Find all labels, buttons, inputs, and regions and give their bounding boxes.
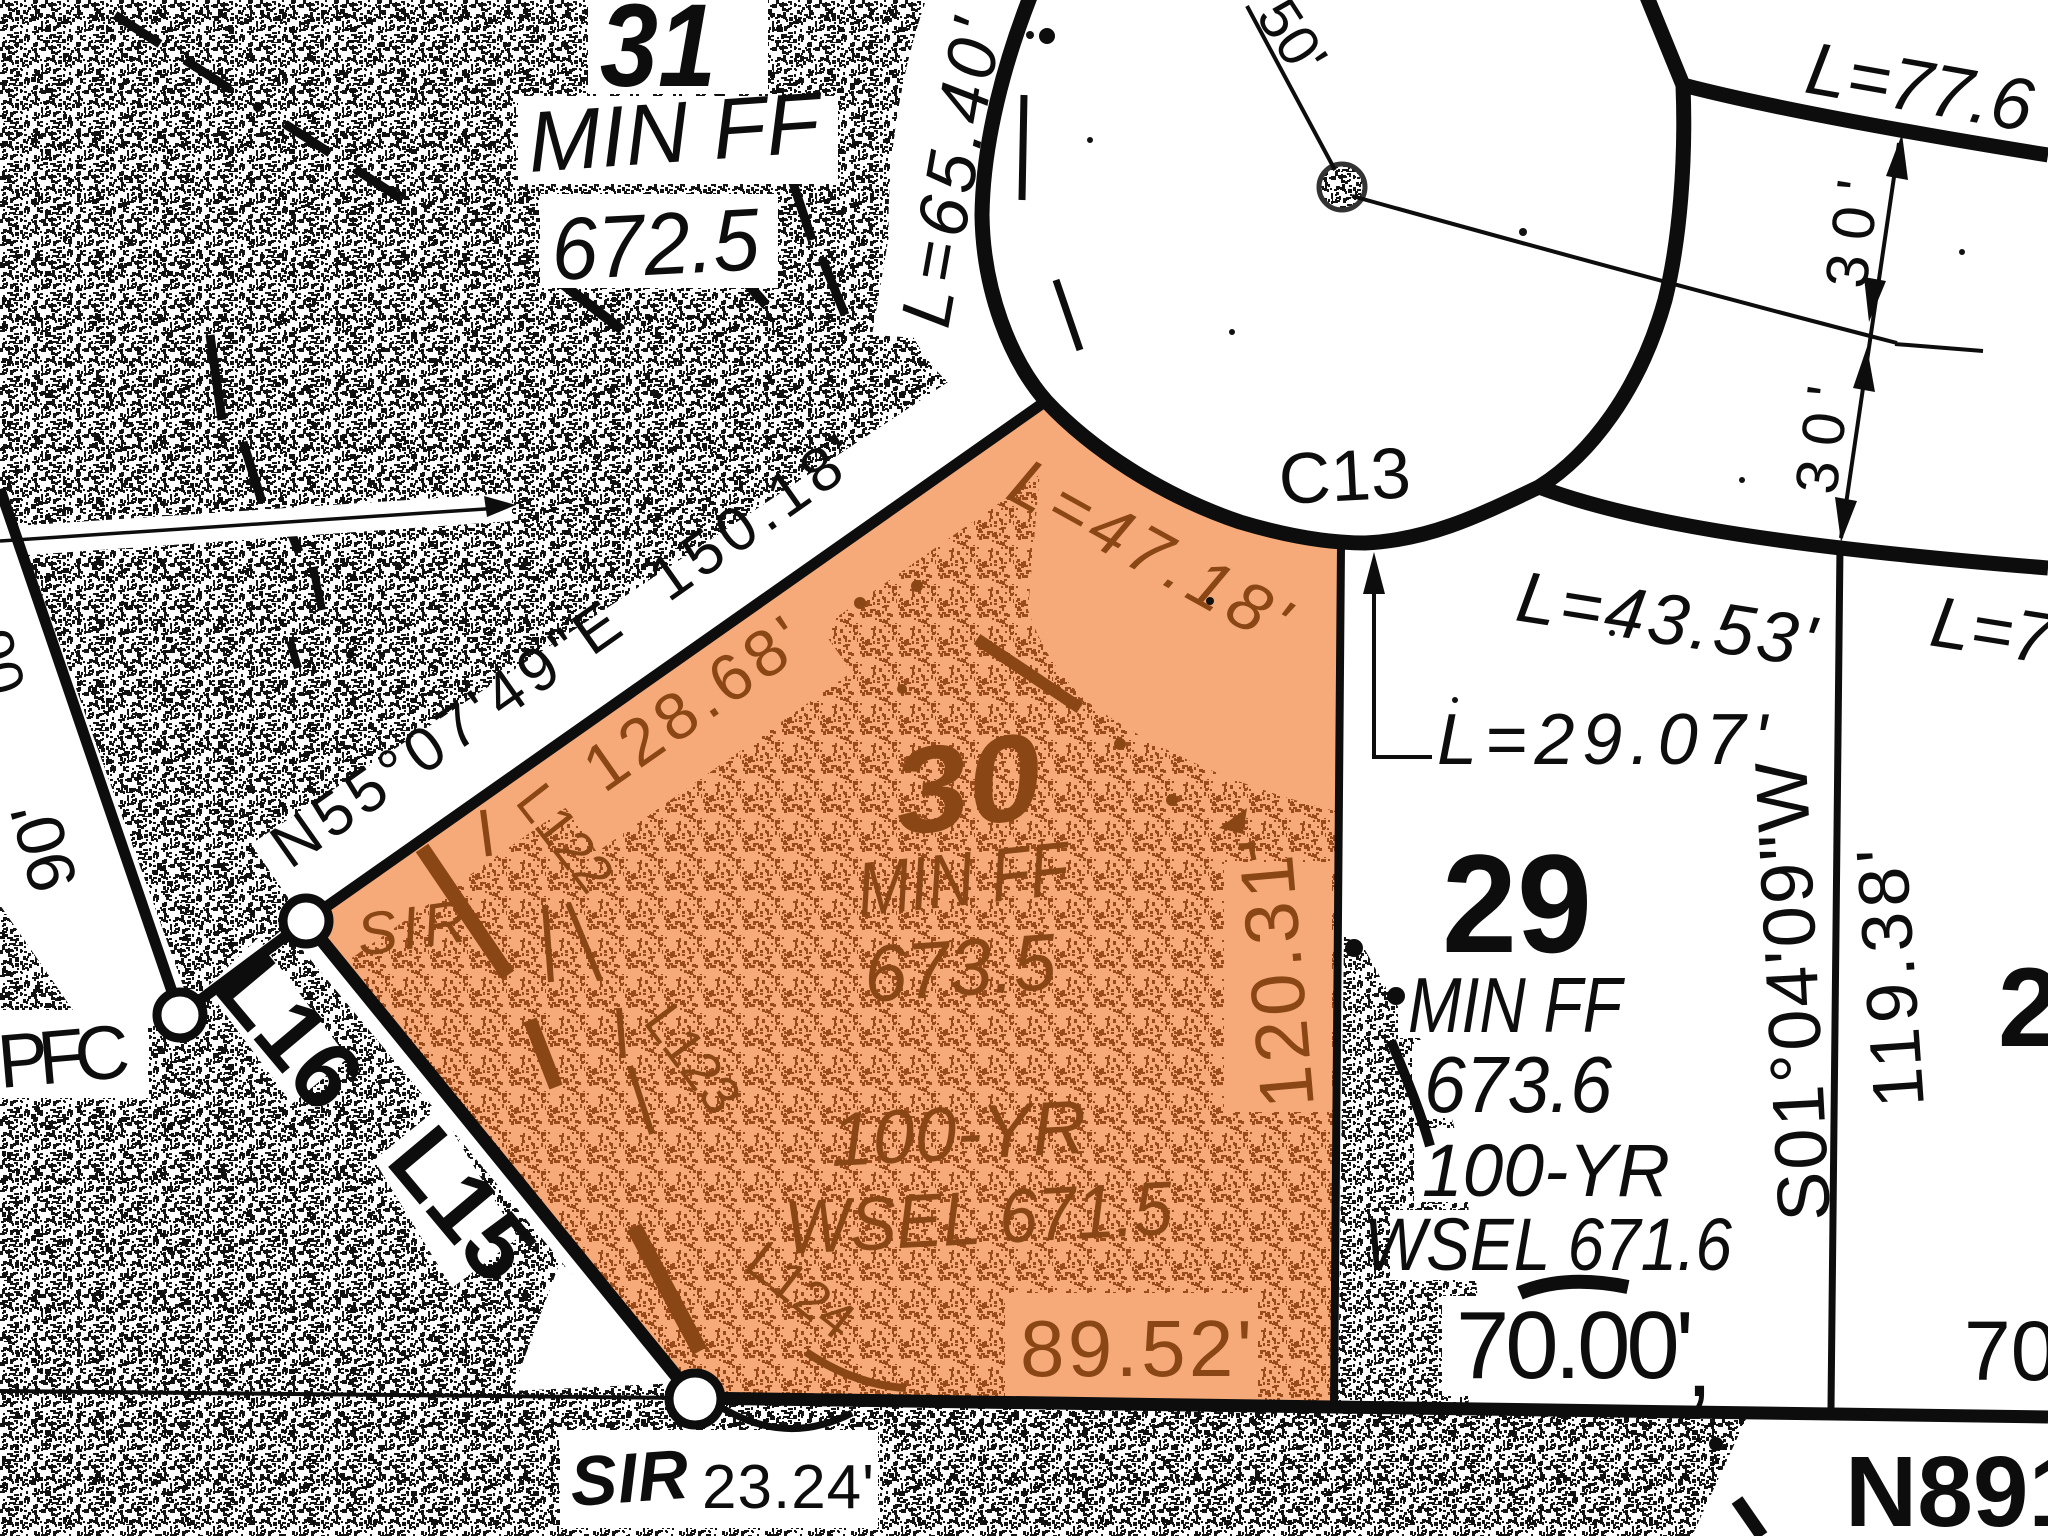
svg-text:C13: C13 — [1277, 433, 1413, 520]
svg-text:29: 29 — [1442, 825, 1592, 982]
svg-text:100-YR: 100-YR — [1422, 1129, 1670, 1212]
svg-text:70.00': 70.00' — [1456, 1292, 1694, 1399]
svg-text:N891: N891 — [1845, 1436, 2048, 1536]
svg-text:28: 28 — [1998, 945, 2048, 1070]
svg-text:L=29.07': L=29.07' — [1437, 700, 1769, 780]
svg-text:PFC: PFC — [0, 1009, 133, 1105]
svg-text:MIN FF: MIN FF — [1408, 961, 1626, 1049]
svg-text:673.6: 673.6 — [1424, 1040, 1612, 1129]
svg-text:672.5: 672.5 — [549, 189, 763, 299]
svg-text:100-YR: 100-YR — [828, 1085, 1088, 1183]
svg-text:WSEL 671.6: WSEL 671.6 — [1364, 1203, 1733, 1286]
svg-text:70.0: 70.0 — [1964, 1304, 2048, 1398]
svg-text:23.24': 23.24' — [702, 1453, 874, 1522]
svg-text:,: , — [1686, 1310, 1713, 1417]
svg-text:SIR: SIR — [568, 1435, 692, 1521]
svg-text:673.5: 673.5 — [861, 917, 1059, 1019]
svg-text:89.52': 89.52' — [1020, 1304, 1252, 1393]
